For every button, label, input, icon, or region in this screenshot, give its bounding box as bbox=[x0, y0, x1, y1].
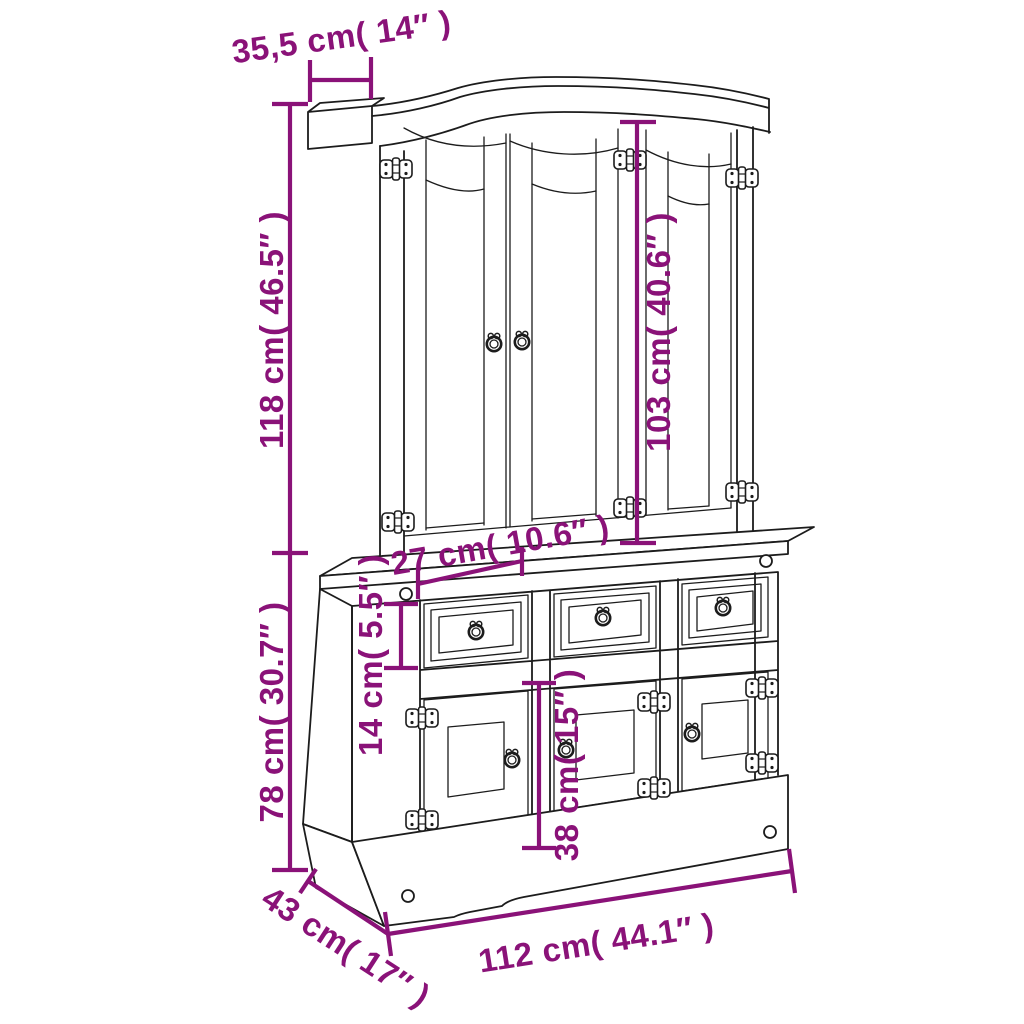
hinge-icon bbox=[638, 777, 670, 799]
dimension-label-base-height: 78 cm( 30.7″ ) bbox=[253, 602, 290, 823]
hinge-icon bbox=[638, 691, 670, 713]
ring-pull-icon bbox=[716, 597, 730, 615]
ring-pull-icon bbox=[596, 607, 610, 625]
hinge-icon bbox=[380, 158, 412, 180]
dimension-top-depth bbox=[310, 57, 371, 102]
base-door-1 bbox=[424, 691, 528, 831]
dowel-hole-icon bbox=[402, 890, 414, 902]
furniture-dimension-diagram: 35,5 cm( 14″ ) 118 cm( 46.5″ ) 103 cm( 4… bbox=[0, 0, 1024, 1024]
ring-pull-icon bbox=[515, 331, 529, 349]
dimension-label-drawer-height: 14 cm( 5.5″ ) bbox=[352, 554, 389, 756]
dimension-label-overall-width: 112 cm( 44.1″ ) bbox=[476, 906, 717, 980]
buffet-side-face bbox=[303, 589, 352, 842]
hutch-door-frames bbox=[426, 129, 731, 530]
dimension-label-hutch-door-height: 103 cm( 40.6″ ) bbox=[640, 212, 677, 452]
dimension-label-base-door-height: 38 cm( 15″ ) bbox=[548, 669, 585, 861]
hutch-body bbox=[380, 127, 753, 557]
hinge-icon bbox=[614, 497, 646, 519]
dimension-label-top-depth: 35,5 cm( 14″ ) bbox=[229, 3, 453, 70]
hinge-icon bbox=[406, 809, 438, 831]
hutch-door-arches bbox=[404, 128, 731, 205]
hinge-icon bbox=[746, 752, 778, 774]
hinge-icon bbox=[406, 707, 438, 729]
crown-curves bbox=[372, 77, 770, 146]
hinge-icon bbox=[726, 167, 758, 189]
hinge-icon bbox=[726, 481, 758, 503]
crown-top bbox=[308, 77, 770, 149]
dimension-drawer-height bbox=[384, 604, 418, 668]
dowel-hole-icon bbox=[760, 555, 772, 567]
hinge-icon bbox=[382, 511, 414, 533]
ring-pull-icon bbox=[685, 723, 699, 741]
dowel-hole-icon bbox=[400, 588, 412, 600]
ring-pull-icon bbox=[505, 749, 519, 767]
hinge-icon bbox=[746, 677, 778, 699]
diagram-canvas: 35,5 cm( 14″ ) 118 cm( 46.5″ ) 103 cm( 4… bbox=[0, 0, 1024, 1024]
ring-pull-icon bbox=[469, 621, 483, 639]
dowel-hole-icon bbox=[764, 826, 776, 838]
drawer-1 bbox=[424, 595, 528, 668]
hutch-outline bbox=[380, 127, 753, 557]
plinth-base bbox=[303, 775, 788, 926]
hinge-icon bbox=[614, 149, 646, 171]
dimension-label-hutch-height: 118 cm( 46.5″ ) bbox=[253, 211, 290, 449]
ring-pull-icon bbox=[487, 333, 501, 351]
